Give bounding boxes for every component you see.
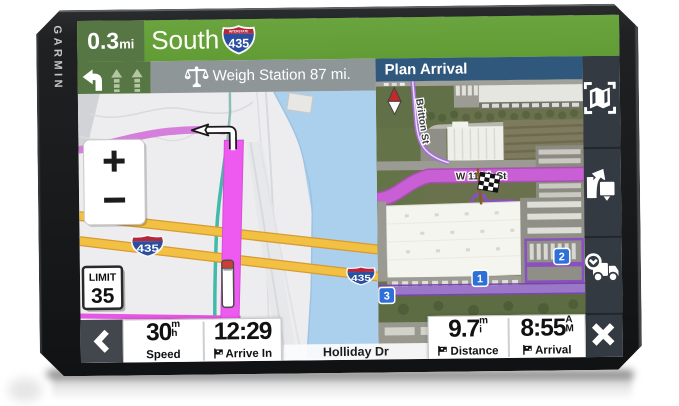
svg-text:435: 435: [351, 274, 371, 283]
svg-text:2: 2: [559, 251, 565, 263]
svg-text:435: 435: [136, 242, 159, 254]
svg-text:1: 1: [477, 273, 483, 285]
svg-text:35: 35: [91, 285, 115, 308]
svg-text:3: 3: [384, 290, 390, 302]
svg-text:LIMIT: LIMIT: [89, 272, 117, 284]
svg-text:INTERSTATE: INTERSTATE: [229, 29, 249, 33]
svg-text:435: 435: [228, 36, 249, 50]
